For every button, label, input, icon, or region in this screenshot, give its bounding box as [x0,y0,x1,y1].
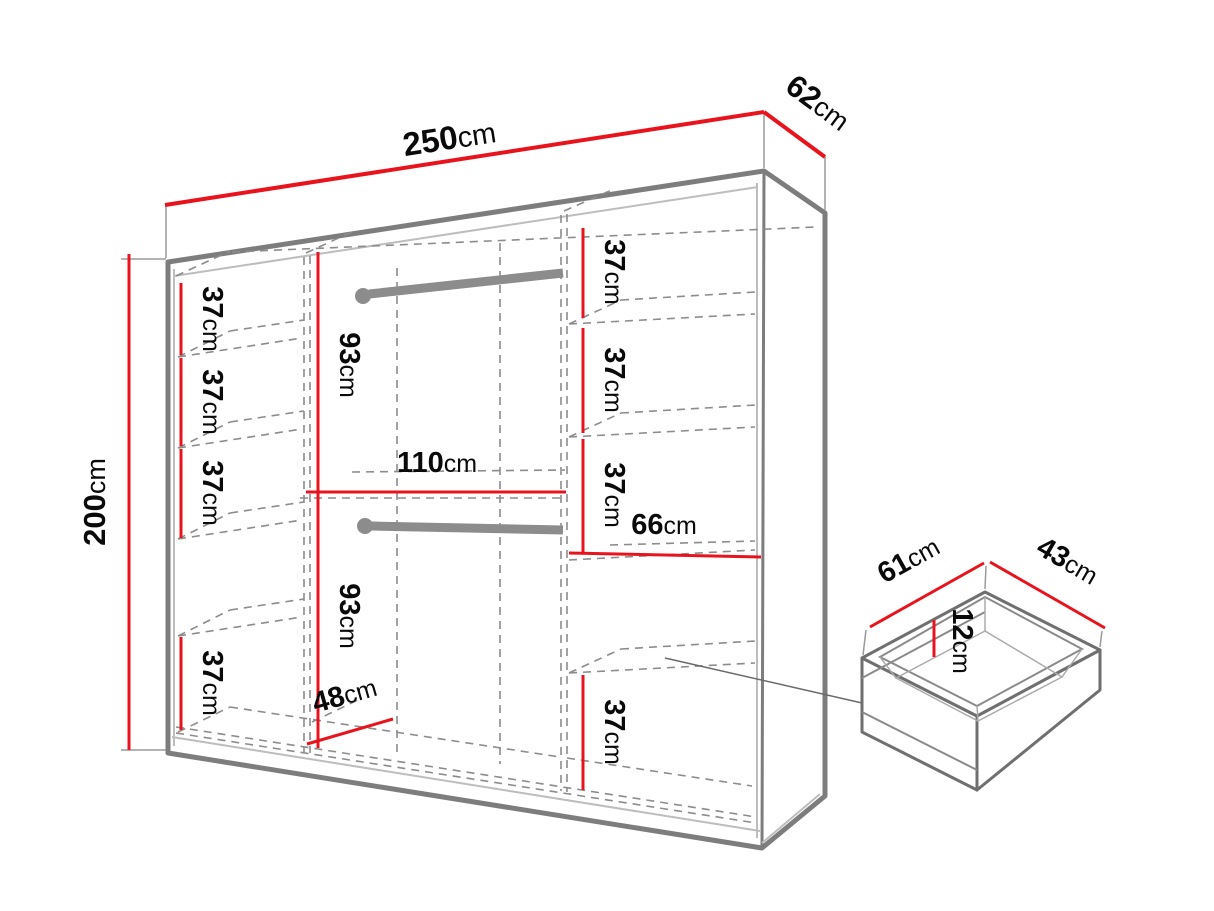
dim-37-left-4-label: 37cm [196,650,228,716]
dim-93-upper-label: 93cm [333,332,365,398]
dim-37-left-3-label: 37cm [196,460,228,526]
dim-37-right-bottom-label: 37cm [598,699,630,765]
rod-cap-upper [355,288,371,304]
dim-66-label: 66cm [631,509,697,541]
dim-93-lower-label: 93cm [333,583,365,649]
dim-62-label: 62cm [780,68,857,138]
rod-lower [371,526,563,530]
diagram-canvas: 250cm 62cm 200cm 37cm 37cm 37cm 37cm 93c… [0,0,1214,911]
drawer-detail [862,562,1105,790]
dim-200-label: 200cm [77,458,112,546]
front-right-edge [762,171,764,848]
dim-37-right-3-label: 37cm [598,462,630,528]
dim-37-left-1-label: 37cm [196,286,228,352]
dim-12-label: 12cm [946,608,978,674]
dim-61-label: 61cm [872,530,945,590]
dim-37-left-2-label: 37cm [196,369,228,435]
dim-110-label: 110cm [397,447,477,479]
dim-37-right-1-label: 37cm [598,239,630,305]
rod-cap-lower [357,518,373,534]
dim-43-label: 43cm [1031,531,1104,592]
dim-37-right-2-label: 37cm [598,347,630,413]
wardrobe-dimension-diagram: 250cm 62cm 200cm 37cm 37cm 37cm 37cm 93c… [0,0,1214,911]
